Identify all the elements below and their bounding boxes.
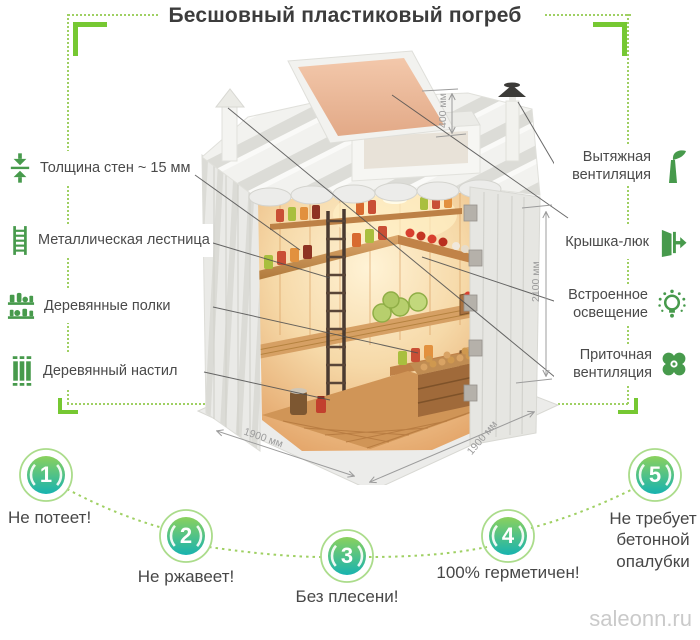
feature-label: Металлическая лестница (38, 231, 210, 249)
watermark: saleonn.ru (589, 606, 692, 632)
feature-item-ladder: Металлическая лестница (8, 224, 213, 257)
fan-icon (661, 351, 687, 377)
feature-label: Крышка-люк (565, 233, 649, 251)
feature-item-decking: Деревянный настил (7, 354, 181, 388)
benefit-label-2: Не ржавеет! (130, 566, 242, 587)
corner-bracket-bottom-left (58, 410, 78, 414)
feature-label: Встроенное освещение (557, 286, 648, 322)
benefit-number: 3 (319, 528, 375, 584)
benefit-label-4: 100% герметичен! (433, 562, 583, 583)
feature-item-lighting: Встроенное освещение (554, 284, 690, 324)
corner-bracket-top-left (73, 22, 107, 27)
benefit-badge-2: 2 (158, 508, 214, 564)
wall-thickness-icon (9, 153, 31, 183)
feature-label: Деревянный настил (43, 362, 178, 380)
cellar-cutaway-illustration (160, 45, 580, 485)
exhaust-vent-icon (660, 149, 687, 183)
feature-label: Вытяжная вентиляция (557, 148, 651, 184)
feature-item-shelves: Деревянные полки (4, 289, 173, 323)
feature-label: Толщина стен ~ 15 мм (40, 159, 190, 177)
feature-item-supply-vent: Приточная вентиляция (554, 344, 690, 384)
corner-bracket-bottom-right (618, 410, 638, 414)
benefit-badge-4: 4 (480, 508, 536, 564)
shelves-icon (7, 291, 35, 321)
infographic-canvas: Бесшовный пластиковый погреб Толщина сте… (0, 0, 700, 640)
ladder-icon (11, 226, 29, 255)
benefit-label-1: Не потеет! (8, 507, 91, 528)
corner-bracket-top-left (73, 22, 78, 56)
feature-item-wall-thickness: Толщина стен ~ 15 мм (6, 151, 193, 185)
feature-label: Деревянные полки (44, 297, 170, 315)
feature-label: Приточная вентиляция (557, 346, 652, 382)
benefit-label-5: Не требует бетонной опалубки (602, 508, 700, 572)
dimension-body-height: 2100 мм (530, 261, 542, 302)
benefit-number: 5 (627, 447, 683, 503)
benefit-badge-1: 1 (18, 447, 74, 503)
benefit-number: 1 (18, 447, 74, 503)
light-bulb-icon (657, 289, 687, 320)
benefit-badge-3: 3 (319, 528, 375, 584)
benefit-label-3: Без плесени! (287, 586, 407, 607)
dimension-hatch-height: 400 мм (437, 93, 449, 128)
feature-item-hatch-cover: Крышка-люк (554, 226, 690, 259)
decking-icon (10, 356, 34, 386)
benefit-number: 4 (480, 508, 536, 564)
corner-bracket-top-right (622, 22, 627, 56)
feature-item-exhaust-vent: Вытяжная вентиляция (554, 146, 690, 186)
benefit-badge-5: 5 (627, 447, 683, 503)
hatch-door-icon (658, 228, 687, 257)
benefit-number: 2 (158, 508, 214, 564)
